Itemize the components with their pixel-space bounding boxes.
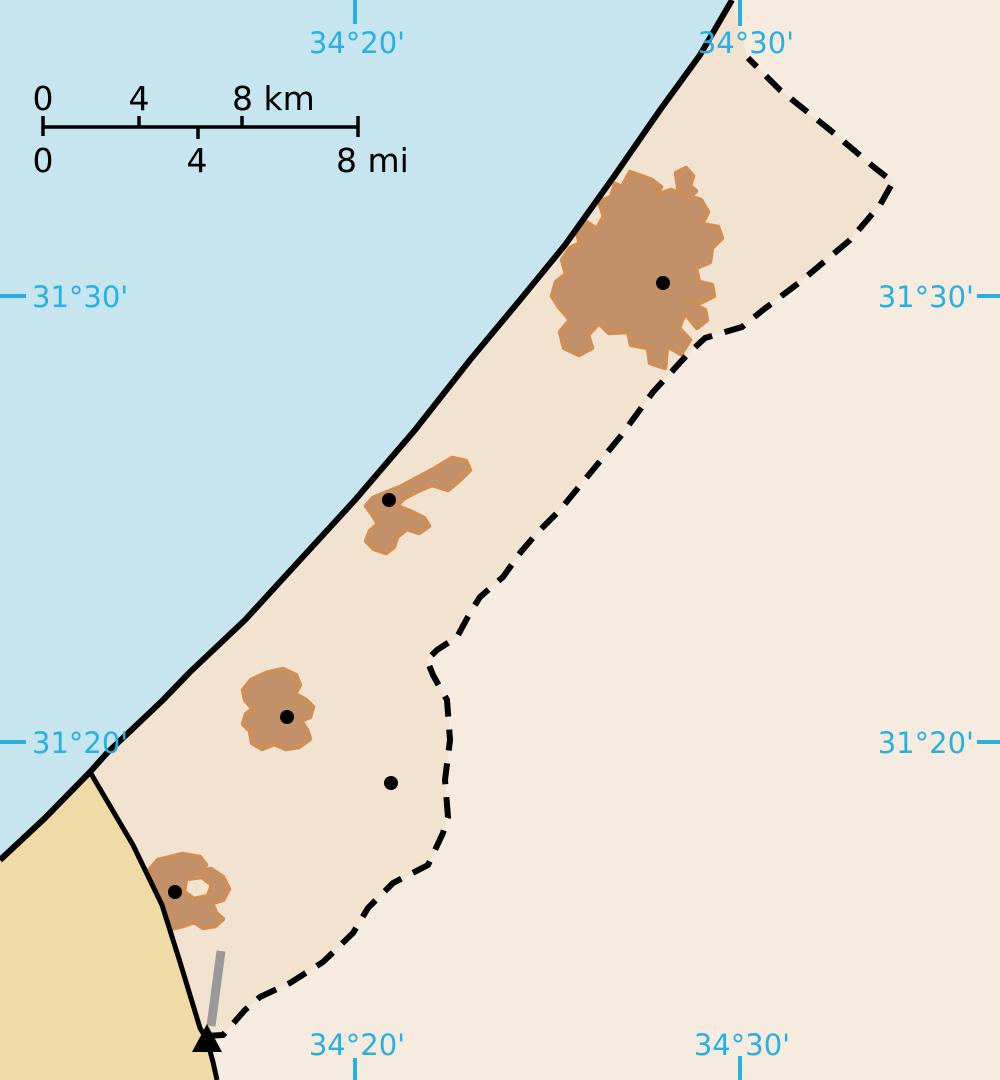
scale-mi-0: 0: [33, 141, 54, 180]
scale-mi-8: 8 mi: [336, 141, 409, 180]
label-lon-34-30-top: 34°30': [698, 26, 794, 60]
label-lat-31-30-right: 31°30': [878, 280, 974, 314]
label-lon-34-20-bottom: 34°20': [309, 1028, 405, 1062]
city-dot-bani-suheila: [384, 776, 398, 790]
label-lon-34-30-bottom: 34°30': [694, 1028, 790, 1062]
label-lat-31-20-right: 31°20': [878, 726, 974, 760]
label-lat-31-30-left: 31°30': [32, 280, 128, 314]
scale-km-0: 0: [33, 79, 54, 118]
scale-km-8: 8 km: [232, 79, 315, 118]
city-dot-gaza: [656, 276, 670, 290]
scale-mi-4: 4: [187, 141, 208, 180]
scale-km-4: 4: [129, 79, 150, 118]
city-dot-khan-yunis: [280, 710, 294, 724]
map-container: 34°20' 34°30' 31°30' 31°30' 31°20' 31°20…: [0, 0, 1000, 1080]
city-dot-deir-al-balah: [382, 493, 396, 507]
label-lat-31-20-left: 31°20': [32, 726, 128, 760]
label-lon-34-20-top: 34°20': [309, 26, 405, 60]
gaza-strip-map: 34°20' 34°30' 31°30' 31°30' 31°20' 31°20…: [0, 0, 1000, 1080]
city-dot-rafah: [168, 885, 182, 899]
